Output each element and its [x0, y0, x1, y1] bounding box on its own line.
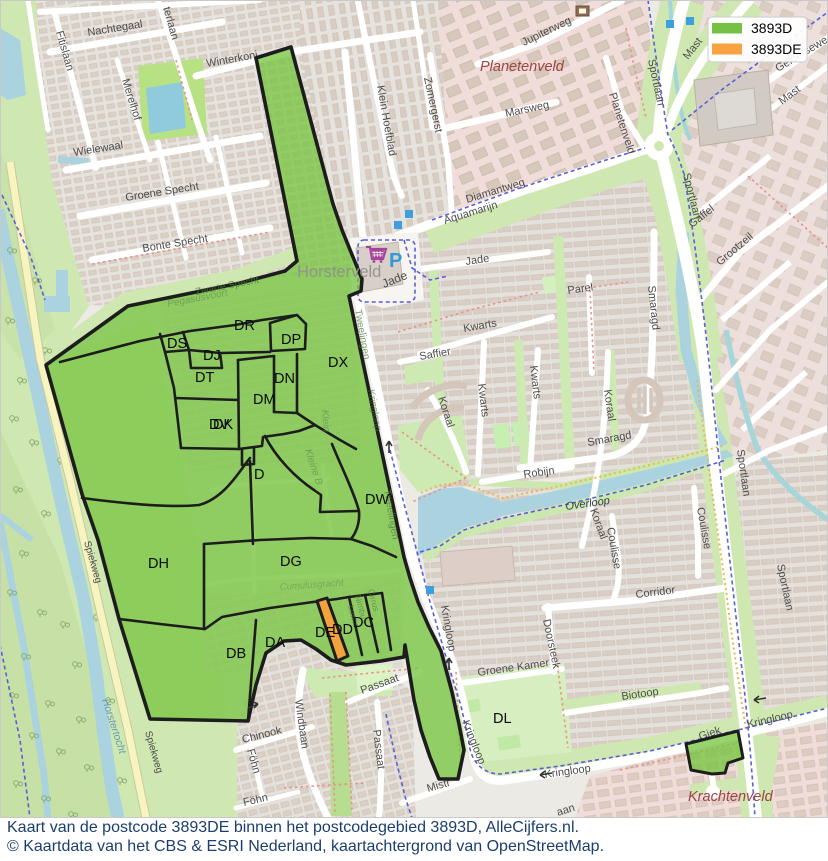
- svg-text:DS: DS: [167, 336, 187, 352]
- svg-text:Klein: Klein: [319, 409, 332, 432]
- svg-text:DP: DP: [281, 332, 301, 348]
- svg-text:Krachtenveld: Krachtenveld: [688, 789, 774, 805]
- svg-text:Horsterveld: Horsterveld: [297, 263, 381, 281]
- svg-text:DG: DG: [280, 554, 302, 570]
- svg-text:DD: DD: [332, 622, 353, 638]
- svg-text:DH: DH: [148, 556, 169, 572]
- svg-text:D: D: [254, 467, 264, 483]
- svg-text:DM: DM: [253, 392, 276, 408]
- svg-text:DB: DB: [226, 646, 246, 662]
- svg-text:DR: DR: [234, 318, 255, 334]
- svg-text:Planetenveld: Planetenveld: [480, 59, 565, 75]
- svg-text:DK: DK: [213, 417, 233, 433]
- svg-text:3893D: 3893D: [751, 20, 792, 36]
- svg-text:DW: DW: [365, 492, 389, 508]
- svg-text:DT: DT: [195, 370, 214, 386]
- svg-text:DL: DL: [493, 711, 512, 727]
- svg-text:DX: DX: [328, 355, 348, 371]
- svg-text:DA: DA: [265, 635, 285, 651]
- svg-text:DN: DN: [274, 371, 295, 387]
- svg-text:3893DE: 3893DE: [751, 41, 802, 57]
- svg-text:DJ: DJ: [203, 348, 221, 364]
- svg-text:DC: DC: [353, 615, 374, 631]
